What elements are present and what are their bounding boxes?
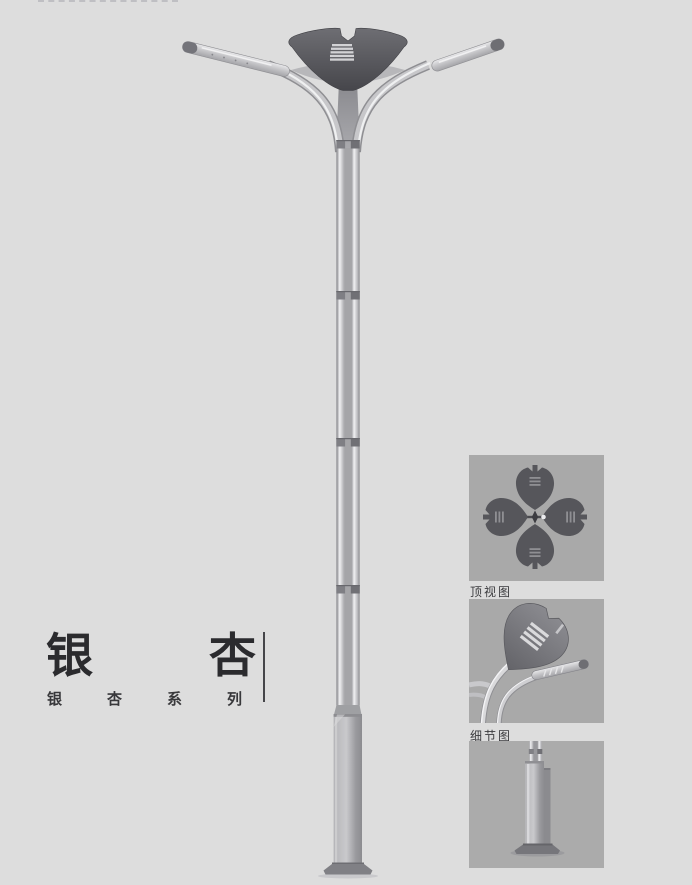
catalog-page: 银杏 银杏系列 顶视图 [0, 0, 692, 885]
base-view-image [469, 741, 604, 868]
title-block: 银杏 银杏系列 [46, 630, 276, 682]
base-plate [324, 864, 373, 875]
base-view-panel [469, 741, 604, 868]
title-divider-line [263, 632, 265, 702]
left-lamp-head [181, 40, 290, 77]
product-series-subtitle: 银杏系列 [47, 688, 287, 709]
product-title: 银杏 [46, 630, 276, 682]
top-view-image [469, 455, 604, 581]
right-lamp-head [430, 37, 505, 72]
pole-base-column [324, 705, 373, 875]
top-view-panel [469, 455, 604, 581]
base-plate-detail [515, 845, 561, 855]
detail-view-panel [469, 599, 604, 723]
top-view-caption: 顶视图 [470, 583, 605, 600]
detail-view-image [469, 599, 604, 723]
